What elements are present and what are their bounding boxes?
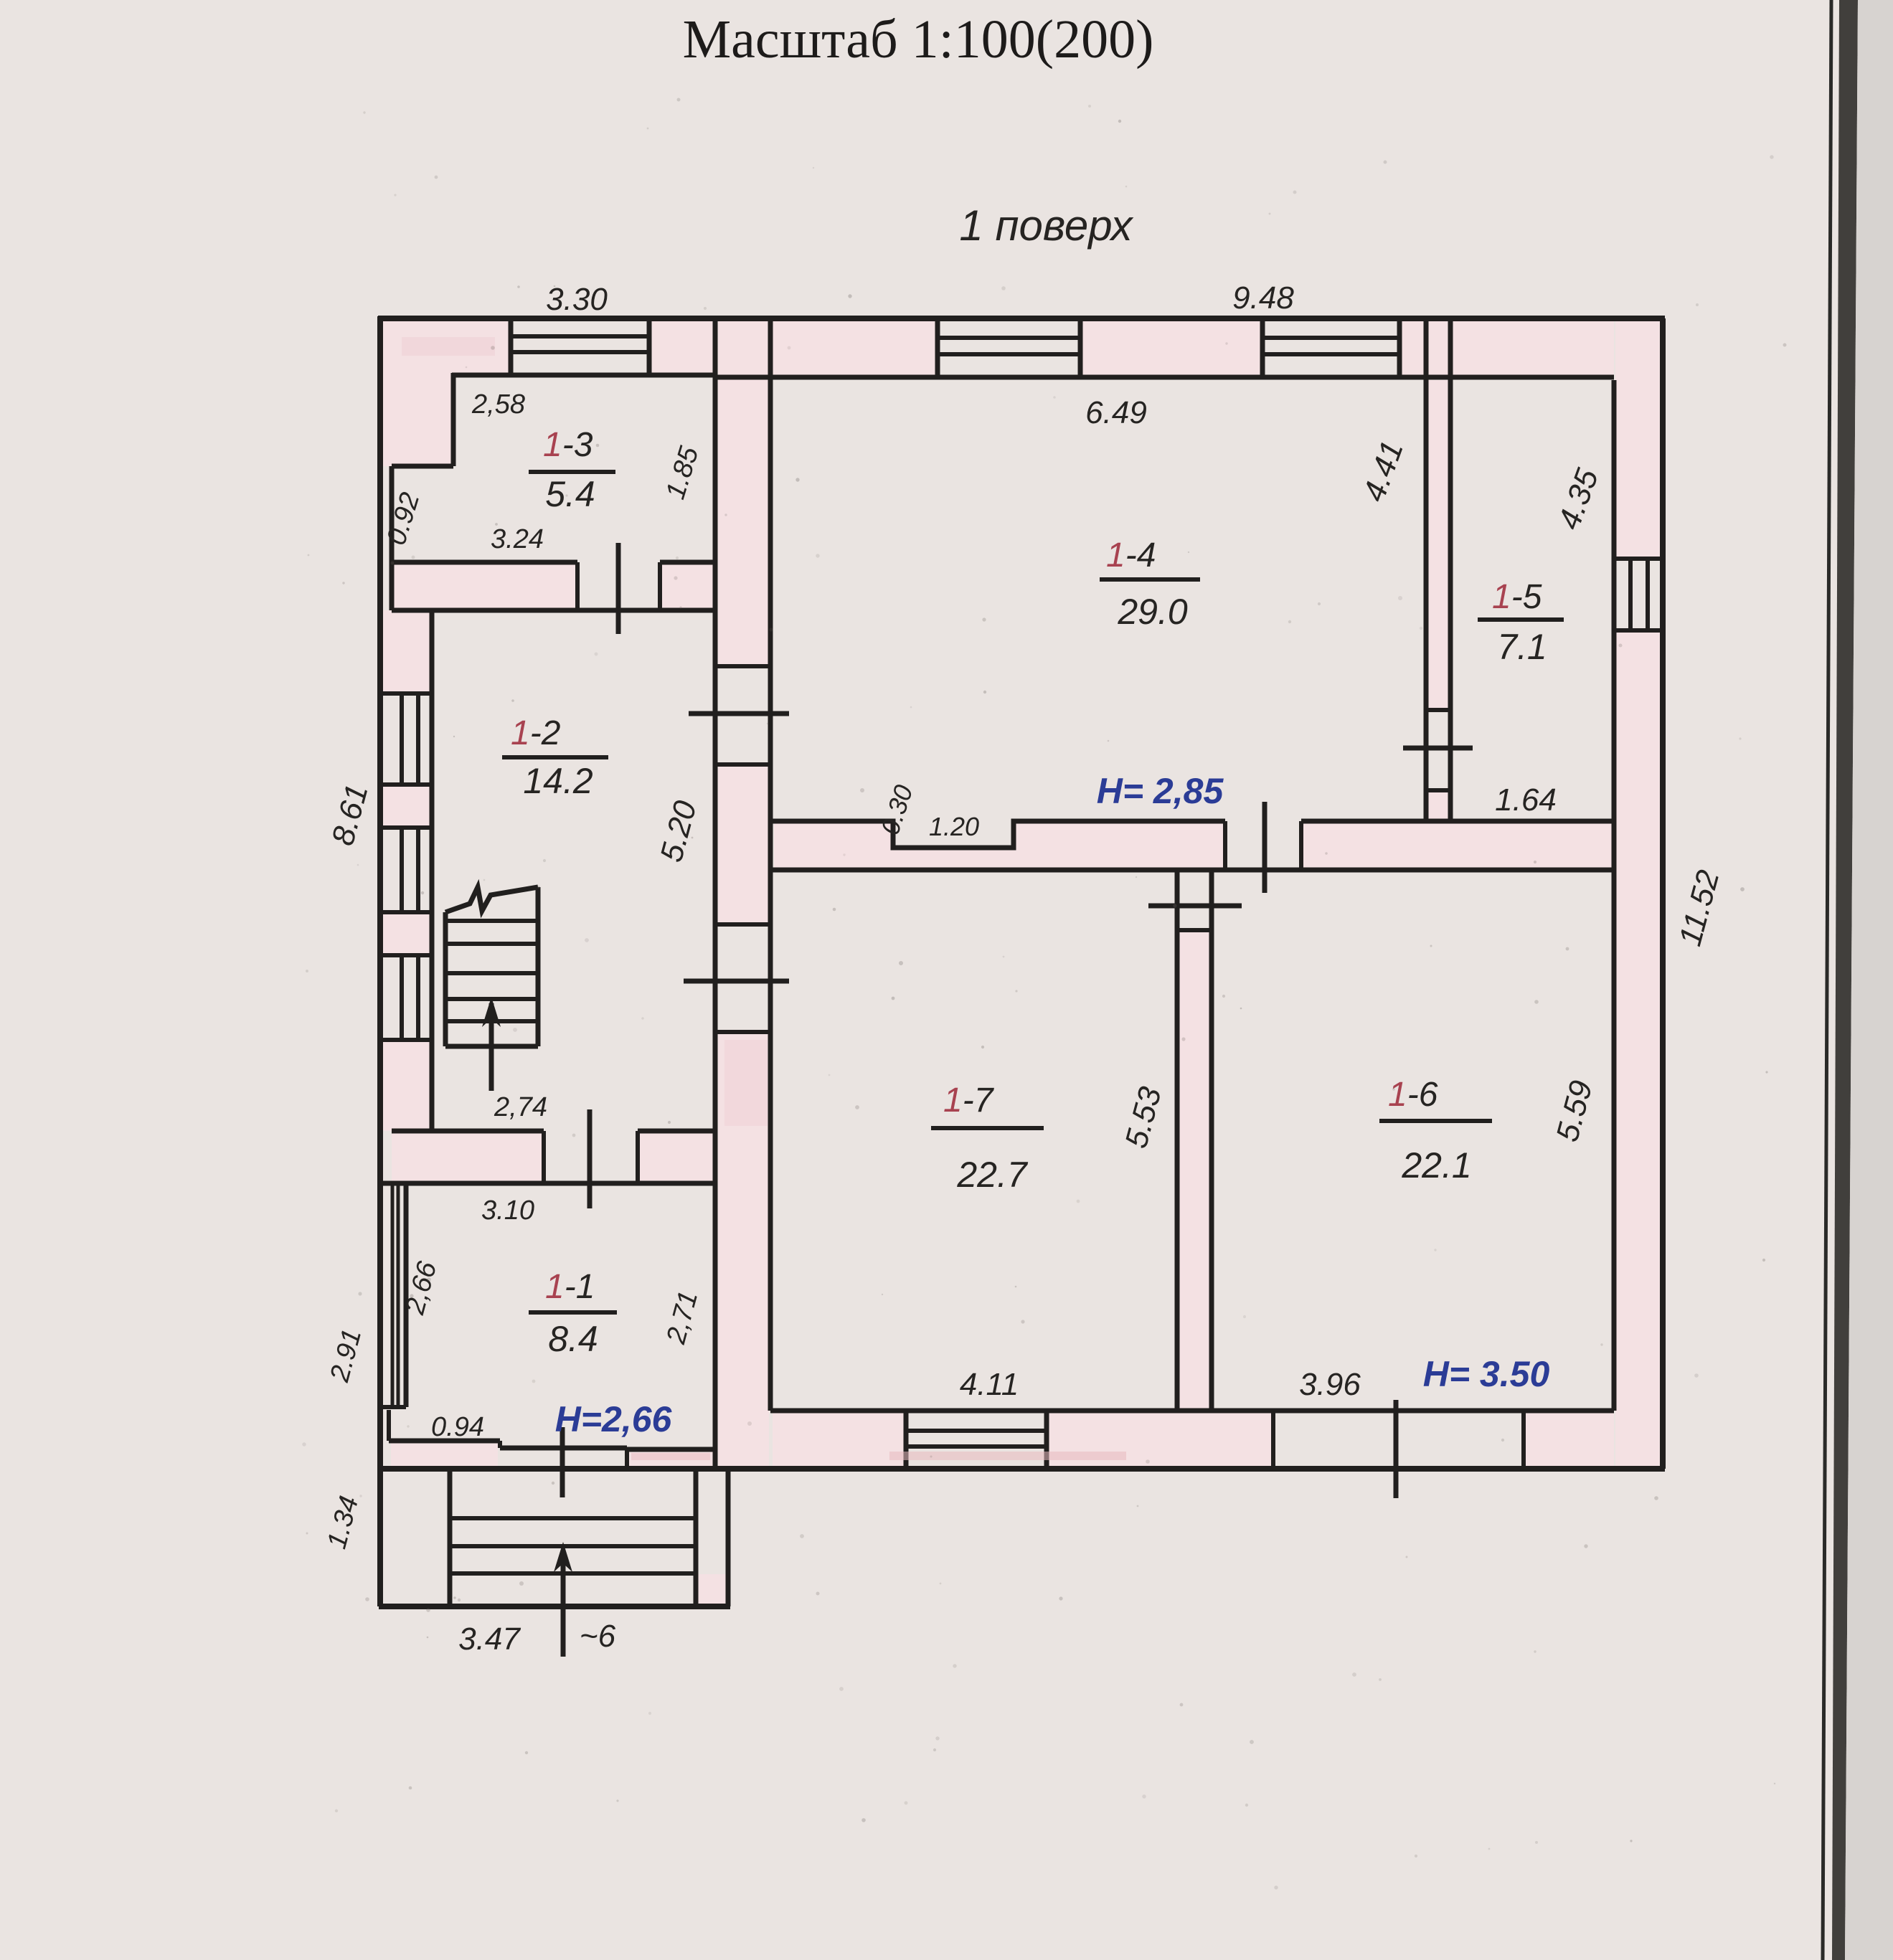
svg-text:1.20: 1.20: [929, 812, 979, 841]
svg-text:22.7: 22.7: [956, 1155, 1029, 1195]
svg-text:1-4: 1-4: [1106, 536, 1156, 574]
svg-text:3.10: 3.10: [481, 1196, 534, 1226]
svg-text:3.96: 3.96: [1299, 1367, 1361, 1402]
svg-text:H=2,66: H=2,66: [555, 1399, 673, 1439]
svg-text:Масштаб 1:100(200): Масштаб 1:100(200): [683, 9, 1154, 70]
svg-text:1 поверх: 1 поверх: [959, 202, 1133, 250]
svg-text:29.0: 29.0: [1117, 592, 1188, 632]
svg-text:3.47: 3.47: [458, 1622, 521, 1657]
svg-text:22.1: 22.1: [1401, 1145, 1471, 1185]
svg-text:8.4: 8.4: [548, 1319, 598, 1359]
svg-text:1-3: 1-3: [543, 426, 593, 464]
svg-text:9.48: 9.48: [1232, 280, 1294, 316]
svg-text:7.1: 7.1: [1497, 627, 1547, 667]
svg-text:H= 2,85: H= 2,85: [1097, 771, 1224, 811]
svg-text:~6: ~6: [580, 1619, 616, 1654]
svg-text:0.94: 0.94: [431, 1412, 484, 1442]
svg-text:1-7: 1-7: [943, 1081, 995, 1119]
svg-text:1-6: 1-6: [1388, 1076, 1438, 1114]
svg-text:2,74: 2,74: [494, 1092, 547, 1122]
svg-text:3.30: 3.30: [546, 282, 608, 317]
svg-text:3.24: 3.24: [491, 524, 544, 554]
svg-text:H= 3.50: H= 3.50: [1423, 1354, 1550, 1394]
svg-text:1-1: 1-1: [545, 1268, 595, 1306]
svg-text:1.64: 1.64: [1495, 782, 1557, 818]
svg-text:2,58: 2,58: [471, 389, 525, 420]
svg-text:4.11: 4.11: [960, 1367, 1019, 1402]
svg-text:1-2: 1-2: [511, 714, 560, 752]
svg-text:14.2: 14.2: [523, 761, 593, 801]
svg-text:5.4: 5.4: [545, 474, 595, 514]
svg-text:1-5: 1-5: [1492, 578, 1542, 616]
svg-text:6.49: 6.49: [1085, 395, 1147, 430]
